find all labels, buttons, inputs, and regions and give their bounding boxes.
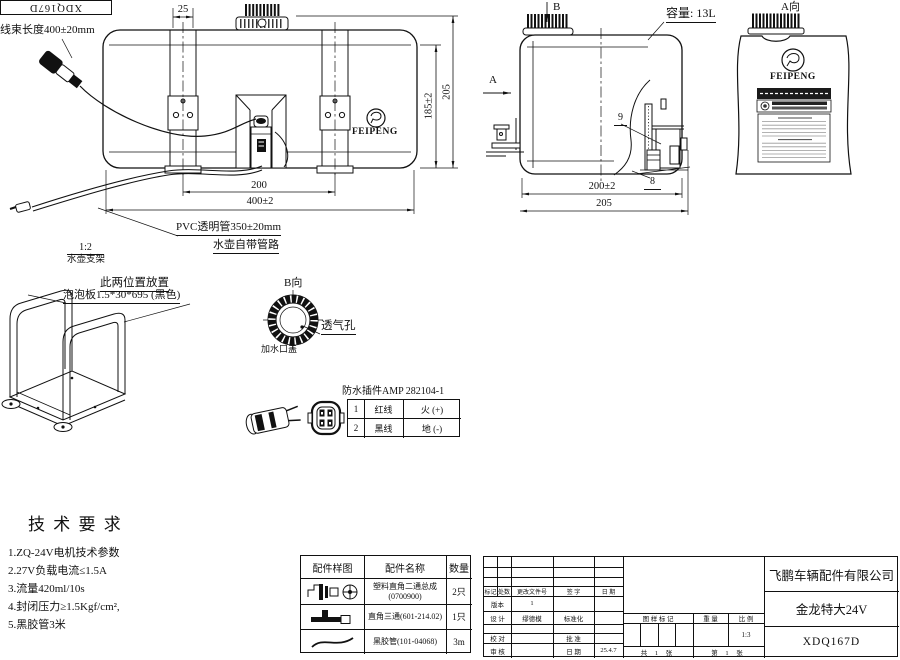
bracket-foam-note: 泡泡板1.5*30*695 (黑色)	[63, 289, 180, 304]
bracket-scale-label: 1:2 水壶支架	[67, 242, 104, 265]
parts-col-sample: 配件样图	[301, 556, 364, 578]
dim-25: 25	[176, 4, 191, 15]
tech-req-title: 技 术 要 求	[28, 515, 123, 535]
pvc-tube-note: PVC透明管350±20mm	[176, 221, 281, 236]
pin-2-polarity: 地 (-)	[403, 418, 461, 438]
parts-row1-name-line2: (0700900)	[388, 592, 421, 601]
company-name: 飞鹏车辆配件有限公司	[764, 557, 899, 591]
vent-hole-label: 透气孔	[321, 320, 356, 335]
bracket-name: 水壶支架	[67, 255, 104, 266]
tech-requirements: 技 术 要 求 1.ZQ-24V电机技术参数 2.27V负载电流≤1.5A 3.…	[8, 515, 123, 634]
pin-1-polarity: 火 (+)	[403, 400, 461, 418]
a-view-drawing	[736, 21, 851, 174]
rev-date-header: 日 期	[594, 586, 623, 596]
rev-file-header: 更改文件号	[511, 586, 553, 596]
front-brand-text: FEIPENG	[352, 127, 398, 138]
scale-value: 1:3	[728, 623, 764, 646]
parts-row1-qty: 2只	[446, 578, 472, 604]
designer-name: 缪德模	[511, 611, 553, 624]
tech-req-item: 2.27V负载电流≤1.5A	[8, 562, 123, 580]
connector-pin-table: 1 红线 火 (+) 2 黑线 地 (-)	[347, 399, 460, 437]
parts-row1-name-line1: 塑料直角二通总成	[373, 581, 437, 592]
bracket-scale-value: 1:2	[67, 242, 104, 255]
parts-col-qty: 数量	[446, 556, 472, 578]
dim-400: 400±2	[245, 196, 276, 207]
tech-req-item: 1.ZQ-24V电机技术参数	[8, 544, 123, 562]
sheets-total: 共 1 张	[623, 646, 693, 658]
elbow-fitting-sample-icon	[303, 581, 361, 603]
hose-sample-icon	[309, 634, 357, 650]
version-label: 版本	[484, 596, 511, 611]
capacity-note: 容量: 13L	[666, 7, 716, 23]
design-label: 设 计	[484, 611, 511, 624]
side-view-b-label: B	[553, 1, 560, 14]
parts-table: 配件样图 配件名称 数量 塑料直角二通总成 (0700900) 2只 直角三通(…	[300, 555, 471, 653]
weight-label: 重 量	[693, 613, 728, 623]
tank-pipe-note: 水壶自带管路	[213, 239, 279, 254]
audit-label: 审 核	[484, 643, 511, 658]
parts-row2-name: 直角三通(601-214.02)	[364, 604, 446, 629]
part-no-corner-box: XDQ167D	[0, 0, 112, 15]
pin-2-no: 2	[348, 418, 364, 438]
rev-count-header: 处数	[497, 586, 511, 596]
title-block: 标记 处数 更改文件号 签 字 日 期 版本 1 设 计 缪德模 标准化 校 对…	[483, 556, 898, 657]
tee-fitting-sample-icon	[309, 608, 357, 626]
dim-185: 185±2	[424, 91, 435, 122]
tech-req-item: 5.黑胶管3米	[8, 616, 123, 634]
standardization-label: 标准化	[553, 611, 594, 624]
filler-cap-label: 加水口盖	[261, 344, 297, 354]
pin-1-no: 1	[348, 400, 364, 418]
a-view-title: A向	[781, 1, 800, 14]
side-view-a-label: A	[489, 74, 497, 87]
parts-row3-name: 黑胶管(101-04068)	[364, 629, 446, 654]
part-8-label: 8	[644, 176, 661, 190]
parts-col-name: 配件名称	[364, 556, 446, 578]
scale-label: 比 例	[728, 613, 764, 623]
dim-205-side: 205	[594, 198, 614, 209]
pin-2-wire: 黑线	[364, 418, 403, 438]
dim-200-front: 200	[249, 180, 269, 191]
b-view-title: B向	[284, 277, 302, 290]
date-label: 日 期	[553, 643, 594, 658]
drawing-sheet: XDQ167D 线束长度400±20mm 25 200 400±2 185±2 …	[0, 0, 900, 660]
front-view-drawing	[10, 8, 458, 236]
date-value: 25.4.7	[594, 643, 623, 658]
product-name: 金龙特大24V	[764, 591, 899, 626]
part-no-corner-text: XDQ167D	[29, 1, 82, 13]
connector-title: 防水插件AMP 282104-1	[342, 386, 444, 398]
pin-1-wire: 红线	[364, 400, 403, 418]
dim-200-side: 200±2	[587, 181, 618, 192]
bracket-drawing	[2, 290, 190, 431]
parts-row2-qty: 1只	[446, 604, 472, 629]
b-view-drawing	[263, 290, 323, 350]
check-label: 校 对	[484, 633, 511, 643]
harness-length-note: 线束长度400±20mm	[0, 24, 95, 37]
a-view-brand-text: FEIPENG	[770, 72, 816, 83]
version-value: 1	[511, 596, 553, 611]
tech-req-item: 4.封闭压力≥1.5Kgf/cm²,	[8, 598, 123, 616]
connector-drawing	[244, 402, 344, 435]
parts-row1-name: 塑料直角二通总成 (0700900)	[364, 578, 446, 604]
drawing-number: XDQ167D	[764, 626, 899, 658]
parts-row3-qty: 3m	[446, 629, 472, 654]
rev-sign-header: 签 字	[553, 586, 594, 596]
drawing-mark-label: 图 样 标 记	[623, 613, 693, 623]
tech-req-item: 3.流量420ml/10s	[8, 580, 123, 598]
rev-mark-header: 标记	[484, 586, 497, 596]
part-9-label: 9	[614, 112, 627, 126]
approve-label: 批 准	[553, 633, 594, 643]
sheet-no: 第 1 张	[693, 646, 764, 658]
dim-205-front: 205	[442, 82, 453, 102]
